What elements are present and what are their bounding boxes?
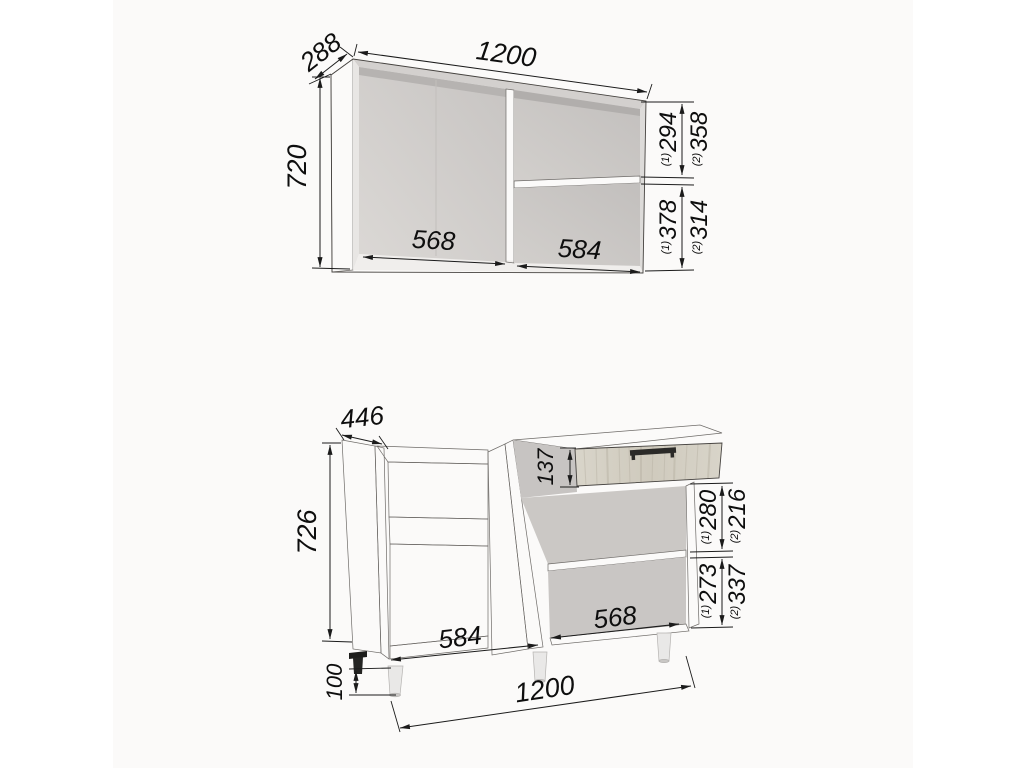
wall-right-opening-dim: 584 [557,233,602,266]
wall-height-dim: 720 [282,144,312,189]
base-right-opening-dim: 568 [592,600,639,635]
wall-cabinet-left-edge [353,59,359,270]
base-drawer-height-dim: 137 [533,448,558,485]
base-leg-height-dim: 100 [322,663,347,700]
base-depth-dim: 446 [339,400,386,434]
front-left-leg [388,666,403,695]
base-height-dim: 726 [292,508,322,554]
cabinet-dimension-drawing: 288 1200 720 568 584 (1)294 (2)358 (1)37… [0,0,1024,768]
drawing-panel [113,0,913,768]
front-right-leg [657,633,671,661]
wall-left-opening-dim: 568 [411,224,457,256]
base-left-opening-dim: 584 [437,620,484,655]
